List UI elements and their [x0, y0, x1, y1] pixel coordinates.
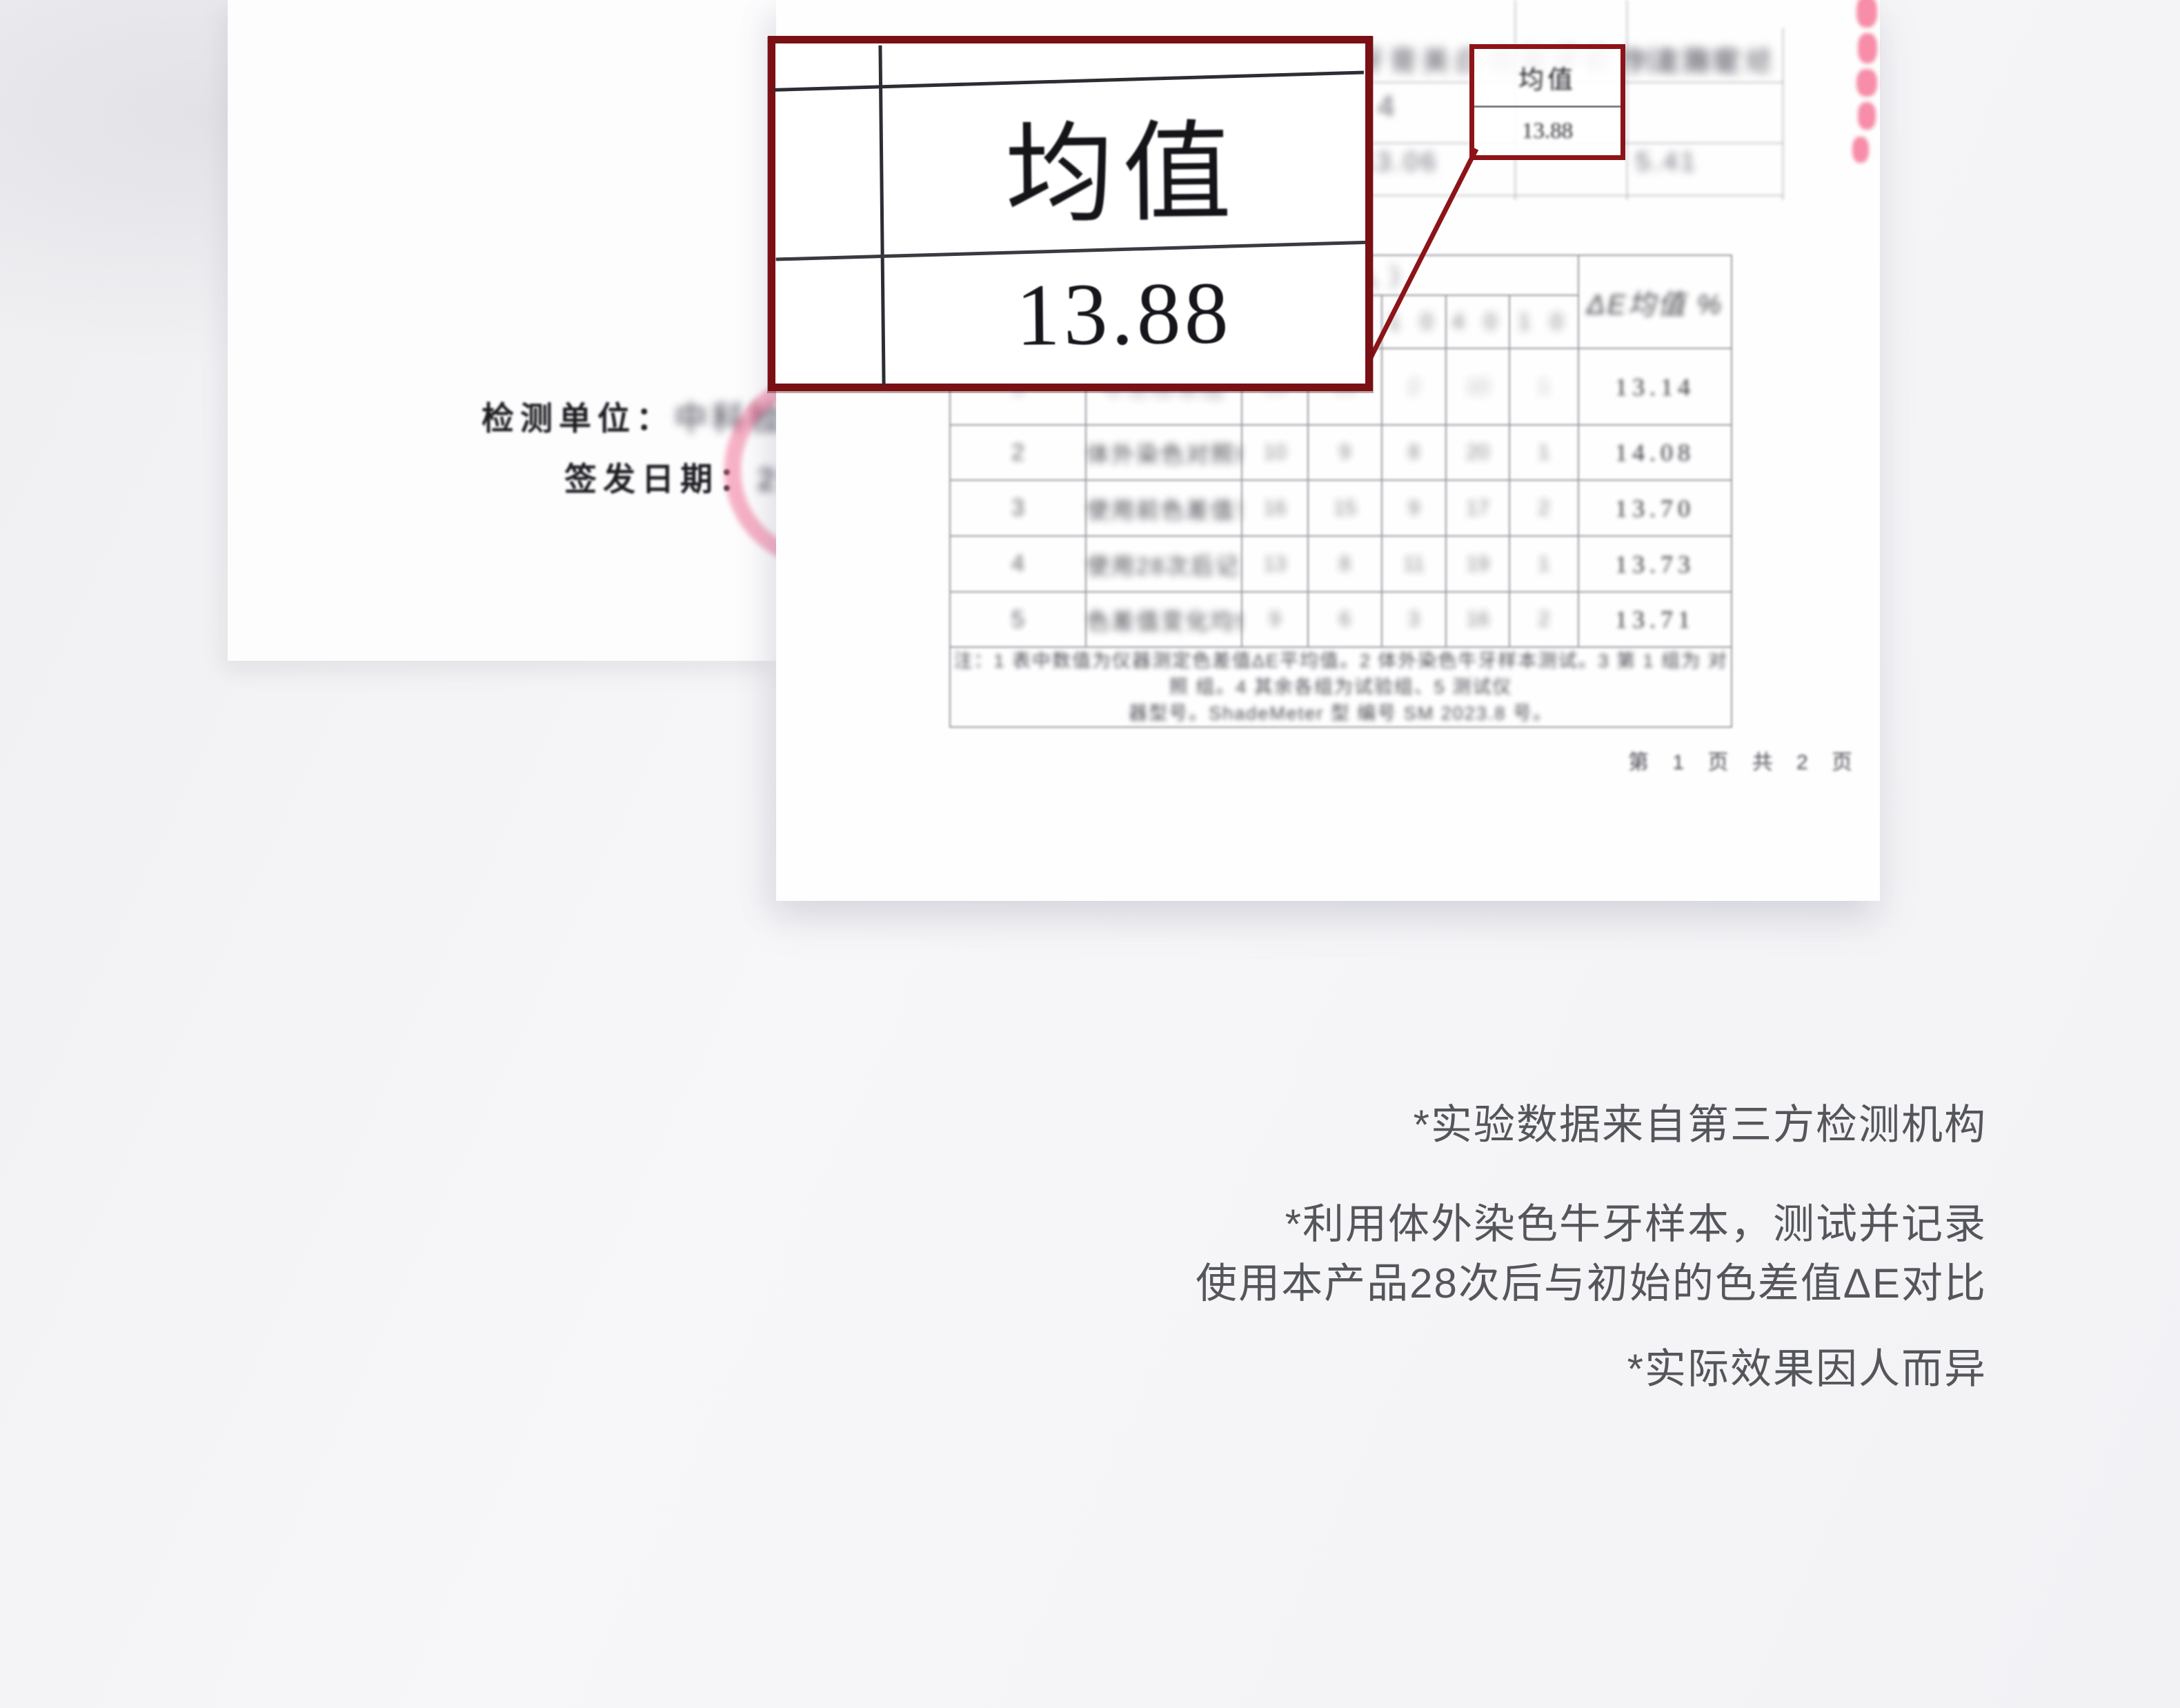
table-footnote: 注：1 表中数值为仪器测定色差值ΔE平均值。2 体外染色牛牙样本测试。3 第 1… [950, 647, 1732, 727]
upper-table-value-a: 4 [1378, 90, 1394, 124]
disclaimer-line-1: *实验数据来自第三方检测机构 [1414, 1091, 1987, 1151]
cell-delta-e: 14.08 [1578, 425, 1732, 480]
cell-data: 17 [1446, 480, 1509, 536]
footnote-line: 器型号。ShadeMeter 型 编号 SM 2023.8 号。 [951, 700, 1731, 726]
table-row: 2 体外染色对照组 10 9 8 20 1 14.08 [950, 425, 1732, 480]
cell-name: 使用前色差值记录 [1086, 480, 1242, 536]
back-paper: 检测单位：中科检测 签发日期：2023 [228, 0, 780, 661]
cell-index: 5 [950, 592, 1086, 647]
table-row: 3 使用前色差值记录 16 15 9 17 2 13.70 [950, 480, 1732, 536]
cell-delta-e: 13.73 [1578, 536, 1732, 592]
issuer-label: 检测单位： [482, 400, 675, 437]
cell-name: 色差值变化均值 [1086, 592, 1242, 647]
cell-delta-e: 13.14 [1578, 348, 1732, 425]
disclaimer-line-4: *实际效果因人而异 [1627, 1335, 1987, 1396]
cell-data: 2 [1382, 348, 1446, 425]
cell-data: 8 [1308, 536, 1382, 592]
table-row: 4 使用28次后记录 13 8 11 19 1 13.73 [950, 536, 1732, 592]
table-row: 5 色差值变化均值 9 6 3 16 2 13.71 [950, 592, 1732, 647]
page: 检测单位：中科检测 签发日期：2023 依据企业标准牙膏美白功效评价方法测定结果… [0, 0, 2180, 1708]
cell-data: 3 [1382, 592, 1446, 647]
cell-data: 6 [1308, 592, 1382, 647]
cell-data: 16 [1446, 592, 1509, 647]
cell-data: 8 [1382, 425, 1446, 480]
cell-name: 使用28次后记录 [1086, 536, 1242, 592]
table-right-header: ΔE均值 % [1578, 255, 1732, 348]
cell-data: 9 [1242, 592, 1308, 647]
disclaimer-line-3: 使用本产品28次后与初始的色差值ΔE对比 [1196, 1250, 1987, 1310]
upper-table-value-c: 5.41 [1636, 148, 1698, 177]
cell-index: 3 [950, 480, 1086, 536]
cell-data: 2 [1509, 480, 1578, 536]
cell-data: 10 [1242, 425, 1308, 480]
cell-data: 10 [1446, 348, 1509, 425]
mini-callout-box: 均值 13.88 [1469, 44, 1625, 160]
mini-callout-value: 13.88 [1474, 108, 1621, 155]
cell-name: 体外染色对照组 [1086, 425, 1242, 480]
table-subheader: 1 0 [1382, 295, 1446, 348]
cell-data: 9 [1382, 480, 1446, 536]
mini-callout-label: 均值 [1474, 49, 1621, 106]
cell-data: 19 [1446, 536, 1509, 592]
cell-data: 9 [1308, 425, 1382, 480]
cell-data: 15 [1308, 480, 1382, 536]
cell-data: 1 [1509, 348, 1578, 425]
cell-data: 20 [1446, 425, 1509, 480]
cell-index: 4 [950, 536, 1086, 592]
cell-data: 1 [1509, 425, 1578, 480]
table-subheader: 4 0 [1446, 295, 1509, 348]
table-subheader: 1 0 [1509, 295, 1578, 348]
cell-data: 2 [1509, 592, 1578, 647]
magnified-callout-box: 均值 13.88 [768, 36, 1373, 391]
cell-data: 16 [1242, 480, 1308, 536]
cell-data: 1 [1509, 536, 1578, 592]
upper-table-header-blurred: 判定指标 [1630, 46, 1747, 77]
footnote-line: 注：1 表中数值为仪器测定色差值ΔE平均值。2 体外染色牛牙样本测试。3 第 1… [951, 648, 1731, 700]
cell-delta-e: 13.71 [1578, 592, 1732, 647]
cell-data: 11 [1382, 536, 1446, 592]
cell-index: 2 [950, 425, 1086, 480]
page-footer: 第 1 页 共 2 页 [1628, 745, 1861, 775]
callout-label: 均值 [879, 82, 1365, 246]
disclaimer-line-2: *利用体外染色牛牙样本，测试并记录 [1285, 1191, 1987, 1251]
cell-delta-e: 13.70 [1578, 480, 1732, 536]
cell-data: 13 [1242, 536, 1308, 592]
callout-value: 13.88 [881, 253, 1367, 375]
